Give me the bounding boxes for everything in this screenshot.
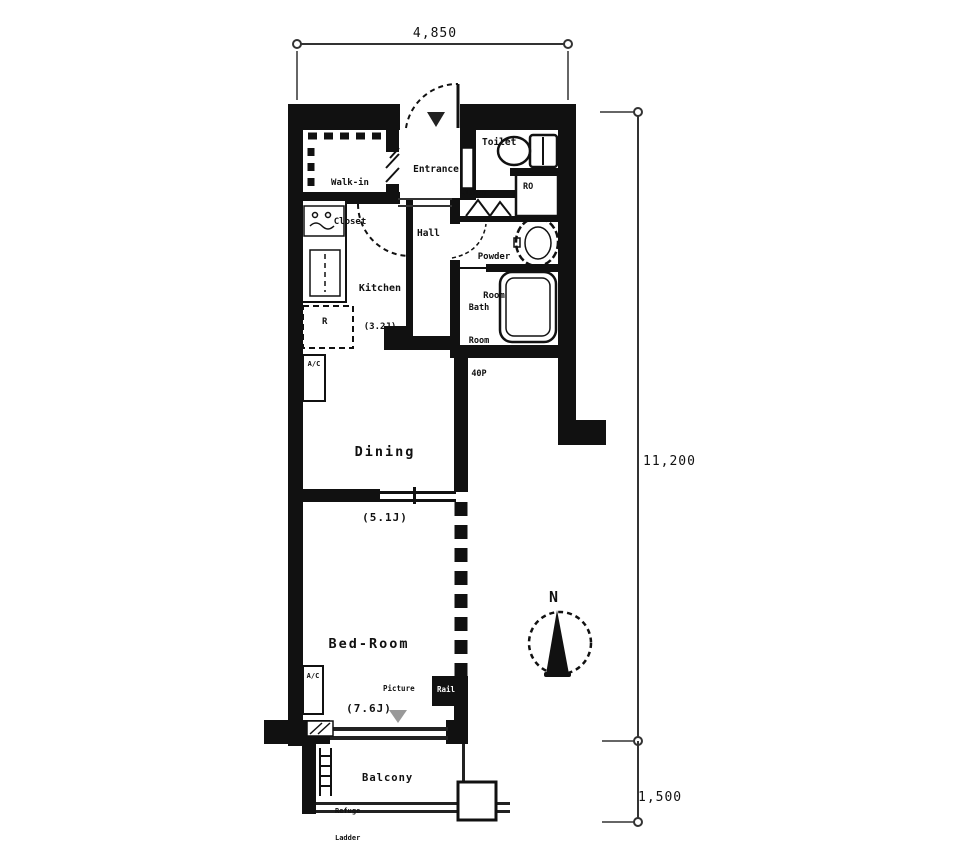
outdoor-unit-icon [458, 782, 496, 820]
walk-in-closet-line1: Walk-in [310, 177, 390, 190]
toilet-label: Toilet [482, 137, 516, 148]
linen-label: Linen [459, 188, 486, 198]
north-compass-icon [529, 610, 591, 677]
floor-plan-drawing [0, 0, 960, 854]
dining-size: (5.1J) [340, 508, 430, 528]
ac-label-bedroom: A/C [306, 672, 320, 681]
picture-rail-label2: Rail [437, 685, 455, 694]
ac-label-dining: A/C [307, 360, 321, 369]
bath-room-label: Bath Room 40P [456, 281, 502, 402]
dining-name: Dining [340, 442, 430, 462]
bedroom-label: Bed-Room (7.6J) [316, 594, 422, 759]
floor-plan: 4,850 11,200 1,500 Walk-in Closet Entran… [0, 0, 960, 854]
walk-in-closet-label: Walk-in Closet [310, 151, 390, 255]
balcony-label: Balcony [362, 772, 413, 784]
kitchen-name: Kitchen [346, 282, 414, 295]
kitchen-label: Kitchen (3.2J) [346, 256, 414, 360]
dimension-width-label: 4,850 [380, 26, 490, 41]
ro-box [516, 174, 558, 216]
bedroom-size: (7.6J) [316, 699, 422, 719]
picture-rail-label: Picture [383, 684, 415, 693]
bath-line1: Bath [456, 303, 502, 314]
entrance-label: Entrance [400, 164, 472, 175]
linen-door-icon [466, 200, 511, 216]
north-label: N [549, 588, 558, 606]
walk-in-closet-line2: Closet [310, 216, 390, 229]
kitchen-size: (3.2J) [346, 321, 414, 334]
entrance-marker-icon [427, 112, 445, 127]
balcony-partition-line [462, 744, 465, 786]
dimension-balcony-label: 1,500 [638, 790, 682, 805]
powder-line1: Powder [462, 251, 526, 264]
dining-label: Dining (5.1J) [340, 402, 430, 568]
ro-label: RO [523, 182, 533, 192]
hall-label: Hall [417, 228, 440, 239]
entrance-door-icon [406, 84, 458, 128]
refuge-line2: Ladder [335, 834, 360, 843]
bedroom-name: Bed-Room [316, 634, 422, 654]
refuge-line1: Refuge [335, 807, 360, 816]
bath-line2: Room [456, 336, 502, 347]
dimension-height-label: 11,200 [643, 454, 696, 469]
bath-size: 40P [456, 369, 502, 380]
refuge-ladder-label: Refuge Ladder [335, 789, 360, 854]
refrigerator-label: R [322, 317, 327, 327]
